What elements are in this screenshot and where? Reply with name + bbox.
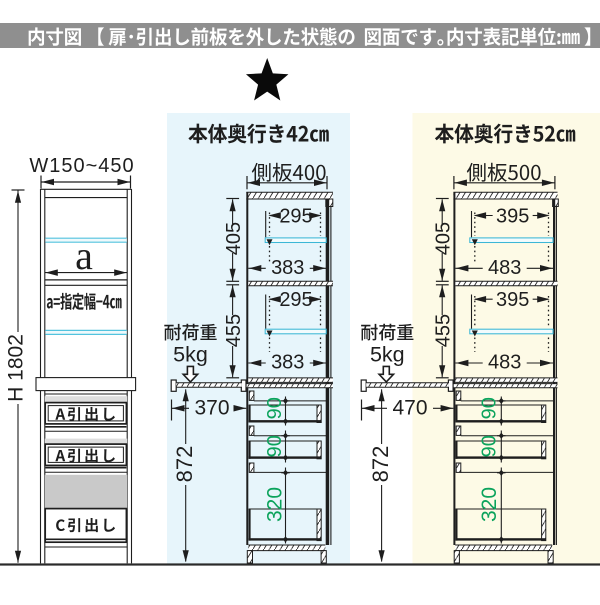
svg-text:90: 90	[479, 397, 501, 419]
svg-text:90: 90	[264, 397, 286, 419]
svg-text:90: 90	[264, 435, 286, 457]
svg-text:405: 405	[223, 222, 245, 255]
svg-text:5kg: 5kg	[173, 343, 208, 367]
svg-text:320: 320	[263, 487, 286, 522]
svg-text:455: 455	[223, 314, 245, 347]
svg-text:320: 320	[478, 487, 501, 522]
svg-text:405: 405	[433, 222, 455, 255]
svg-text:872: 872	[172, 446, 197, 483]
svg-text:395: 395	[496, 289, 529, 311]
svg-text:395: 395	[496, 205, 529, 227]
svg-text:483: 483	[488, 352, 521, 374]
svg-text:295: 295	[279, 205, 312, 227]
svg-text:W150~450: W150~450	[29, 155, 134, 177]
svg-text:383: 383	[271, 257, 304, 279]
svg-text:295: 295	[279, 289, 312, 311]
svg-text:455: 455	[433, 314, 455, 347]
svg-text:470: 470	[392, 396, 427, 419]
svg-text:370: 370	[194, 396, 229, 419]
svg-text:483: 483	[488, 257, 521, 279]
svg-text:90: 90	[479, 435, 501, 457]
svg-text:a: a	[75, 233, 93, 278]
svg-text:5kg: 5kg	[370, 343, 405, 367]
svg-text:H 1802: H 1802	[4, 334, 27, 402]
svg-text:383: 383	[271, 352, 304, 374]
svg-text:872: 872	[368, 446, 393, 483]
